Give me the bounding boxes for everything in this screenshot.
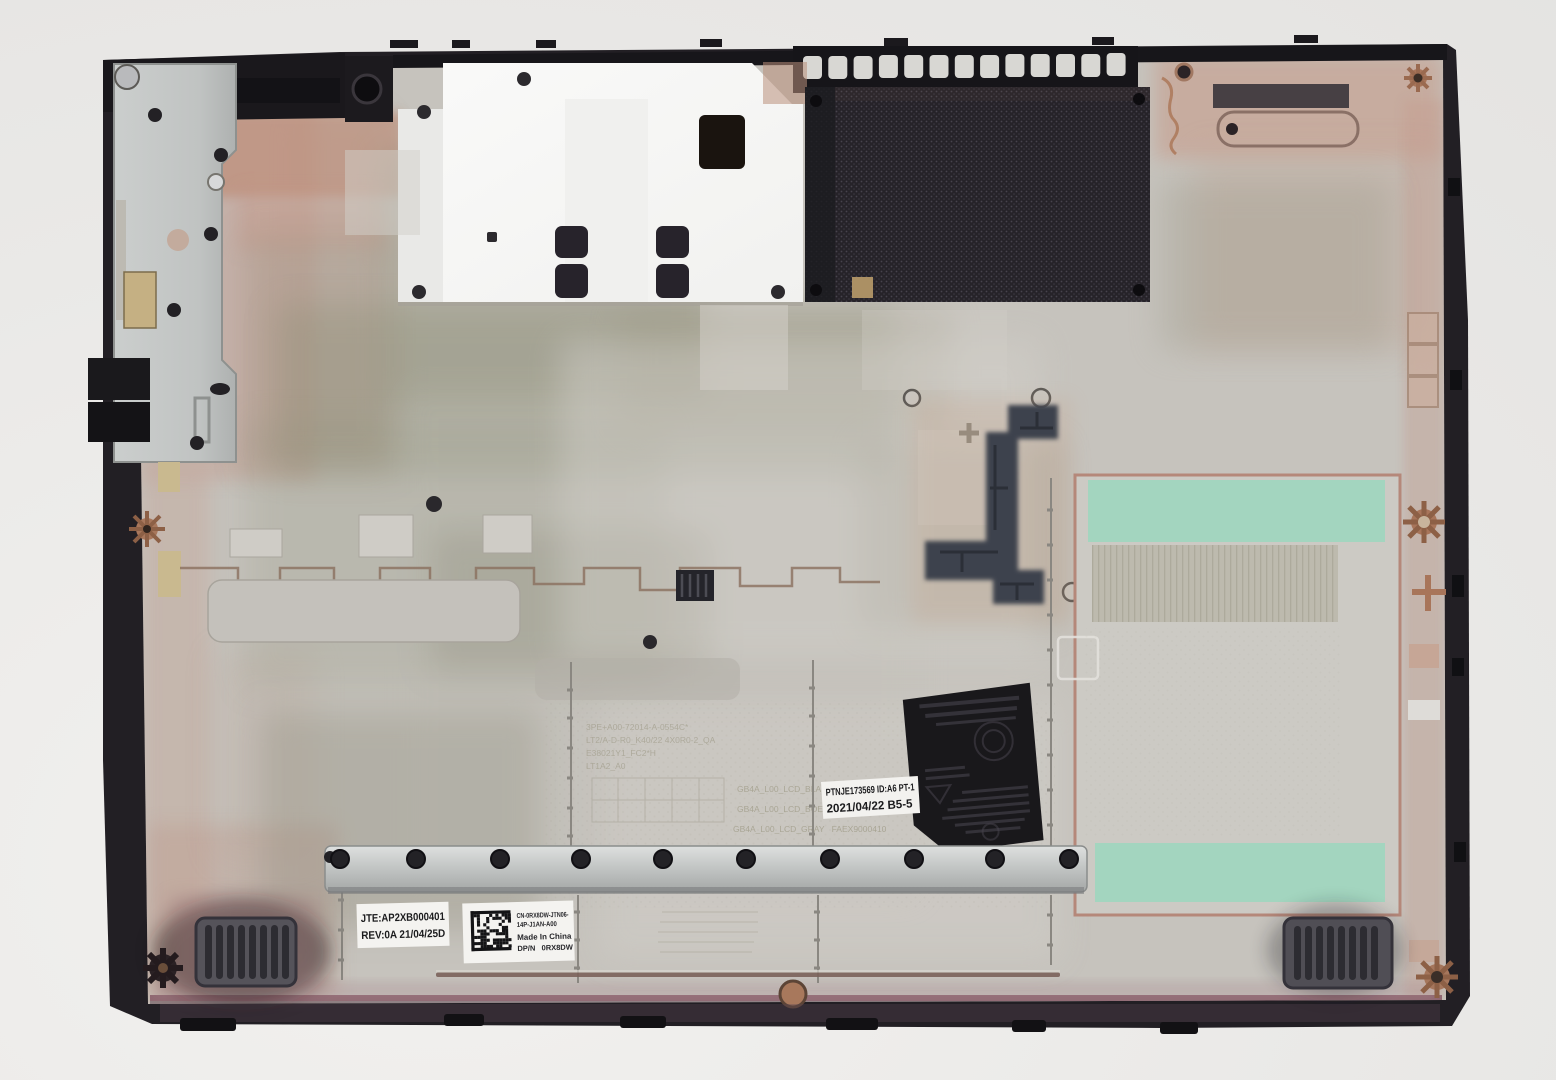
svg-text:Made In China: Made In China — [517, 932, 572, 942]
svg-text:LT1A2_A0: LT1A2_A0 — [586, 761, 626, 771]
svg-text:LT2/A-D-R0_K40/22 4X0R0-2_QA: LT2/A-D-R0_K40/22 4X0R0-2_QA — [586, 735, 716, 745]
svg-text:REV:0A 21/04/25D: REV:0A 21/04/25D — [361, 928, 445, 942]
svg-text:E38021Y1_FC2*H: E38021Y1_FC2*H — [586, 748, 656, 758]
svg-text:DP/N 0RX8DW: DP/N 0RX8DW — [517, 943, 574, 953]
svg-text:14P-J1AN-A00: 14P-J1AN-A00 — [517, 921, 557, 929]
svg-text:CN-0RX8DW-JTN06-: CN-0RX8DW-JTN06- — [517, 912, 570, 920]
svg-text:3PE+A00-72014-A-0554C*: 3PE+A00-72014-A-0554C* — [586, 722, 689, 732]
svg-text:JTE:AP2XB000401: JTE:AP2XB000401 — [361, 911, 445, 925]
